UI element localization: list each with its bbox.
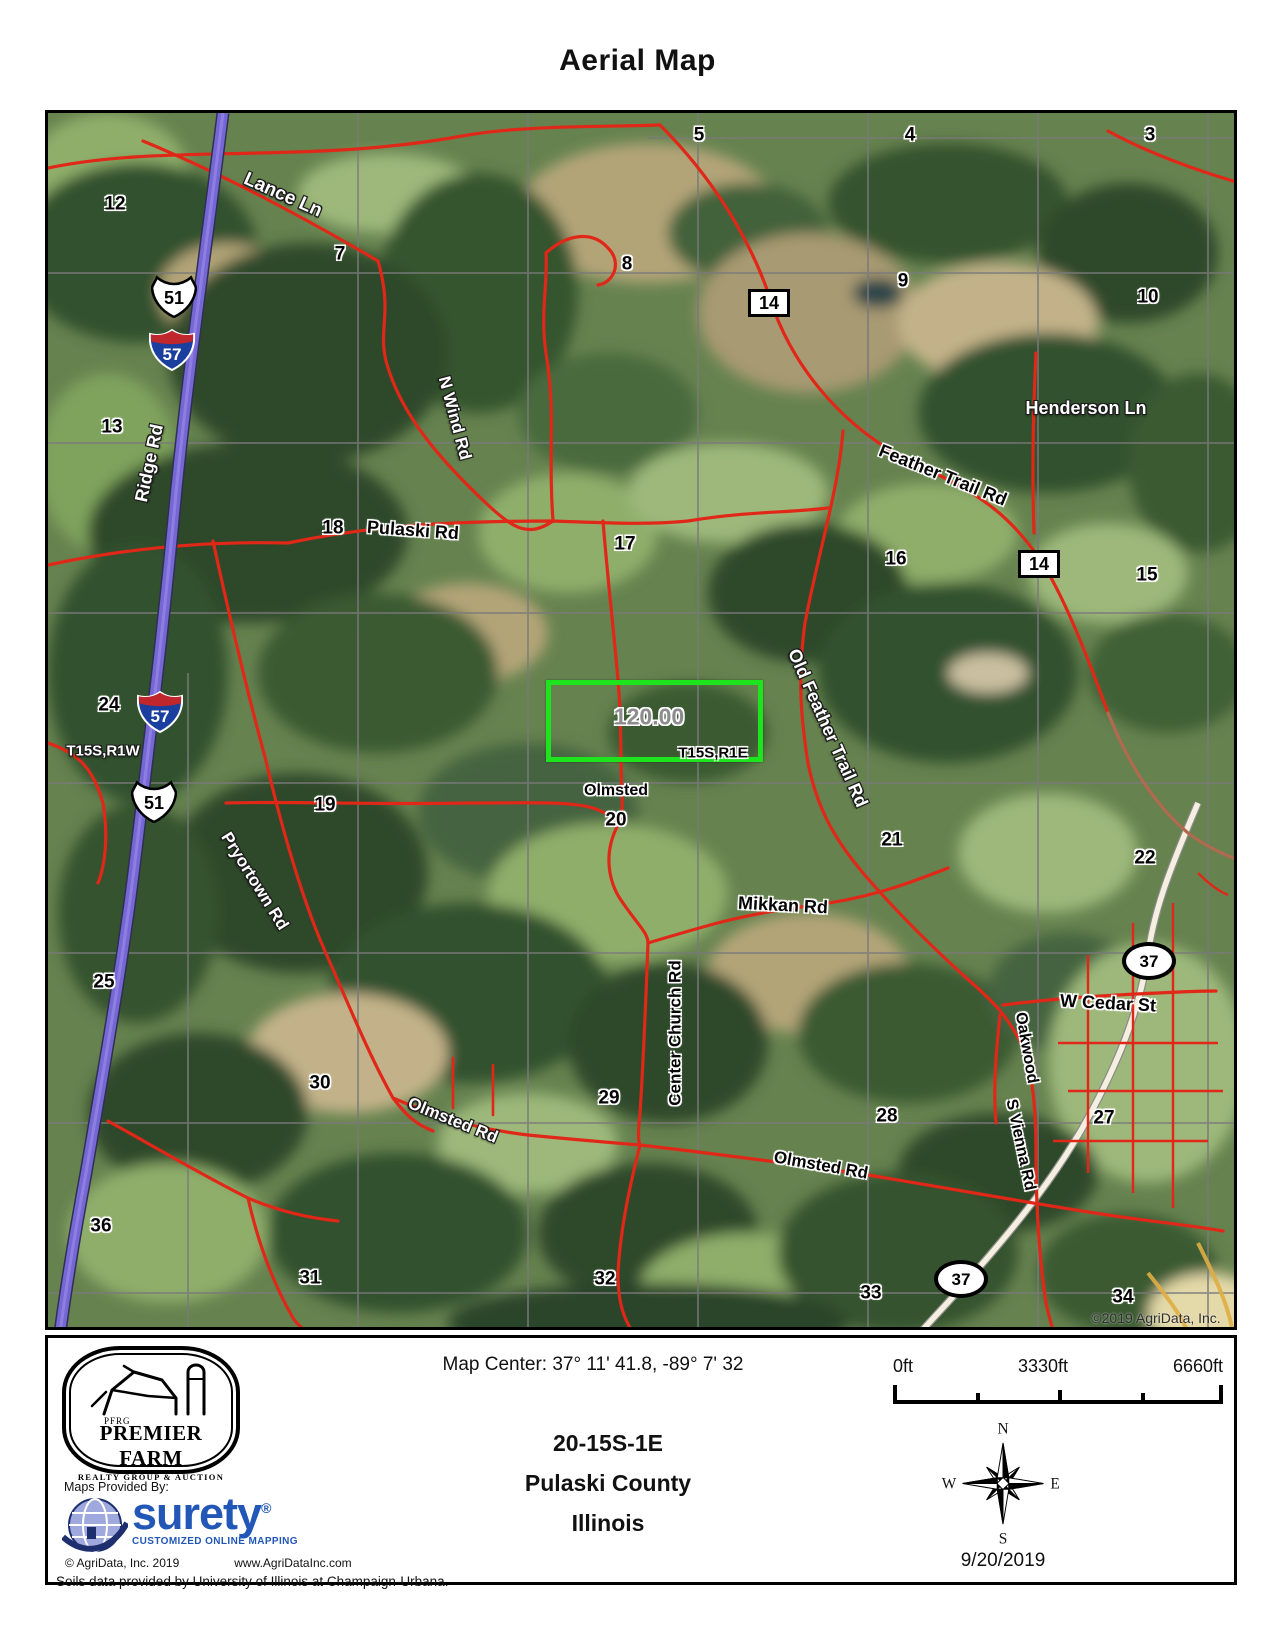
route-box-shield-14: 14 bbox=[748, 289, 790, 317]
state-route-shield-37: 37 bbox=[1122, 942, 1176, 980]
interstate-shield-57: 57 bbox=[137, 691, 183, 733]
us-route-shield-51: 51 bbox=[131, 779, 177, 823]
county-name: Pulaski County bbox=[478, 1470, 738, 1497]
svg-text:57: 57 bbox=[163, 345, 182, 364]
compass-n: N bbox=[997, 1420, 1008, 1437]
scale-bar bbox=[893, 1382, 1223, 1404]
scale-bar-labels: 0ft 3330ft 6660ft bbox=[893, 1356, 1223, 1377]
compass-w: W bbox=[942, 1475, 957, 1492]
map-center-coordinates: Map Center: 37° 11' 41.8, -89° 7' 32 bbox=[378, 1354, 808, 1376]
scale-start: 0ft bbox=[893, 1356, 913, 1377]
township-range-section: 20-15S-1E bbox=[478, 1430, 738, 1457]
agridata-copyright: © AgriData, Inc. 2019 bbox=[65, 1556, 179, 1570]
surety-logo: surety® CUSTOMIZED ONLINE MAPPING bbox=[62, 1494, 298, 1556]
scale-mid: 3330ft bbox=[1018, 1356, 1068, 1377]
us-route-shield-51: 51 bbox=[151, 274, 197, 318]
barn-silo-icon bbox=[76, 1356, 226, 1418]
aerial-map-image: 5431278910131817161524192021222530292827… bbox=[45, 110, 1237, 1330]
page: Aerial Map bbox=[0, 0, 1275, 1650]
registered-mark: ® bbox=[261, 1500, 271, 1516]
svg-text:57: 57 bbox=[151, 707, 170, 726]
premier-farm-logo: PFRG PREMIER FARM REALTY GROUP & AUCTION bbox=[62, 1346, 240, 1474]
soils-data-credit: Soils data provided by University of Ill… bbox=[56, 1574, 448, 1589]
svg-text:51: 51 bbox=[164, 288, 184, 308]
agridata-credit-line: © AgriData, Inc. 2019 www.AgriDataInc.co… bbox=[65, 1556, 365, 1570]
page-title: Aerial Map bbox=[0, 44, 1275, 78]
agridata-url: www.AgriDataInc.com bbox=[234, 1556, 351, 1570]
state-name: Illinois bbox=[478, 1510, 738, 1537]
footer-panel: Map Center: 37° 11' 41.8, -89° 7' 32 20-… bbox=[45, 1335, 1237, 1585]
location-block: 20-15S-1E Pulaski County Illinois bbox=[478, 1430, 738, 1550]
compass-rose-icon: N E S W bbox=[928, 1416, 1078, 1551]
premier-farm-name: PREMIER FARM bbox=[66, 1421, 236, 1471]
route-box-shield-14: 14 bbox=[1018, 550, 1060, 578]
interstate-shield-57: 57 bbox=[149, 329, 195, 371]
svg-text:51: 51 bbox=[144, 793, 164, 813]
globe-icon bbox=[62, 1494, 128, 1556]
compass-e: E bbox=[1050, 1475, 1059, 1492]
compass-s: S bbox=[999, 1530, 1008, 1547]
pfrg-monogram: PFRG bbox=[104, 1416, 131, 1426]
state-route-shield-37: 37 bbox=[934, 1260, 988, 1298]
map-date: 9/20/2019 bbox=[928, 1550, 1078, 1572]
surety-wordmark: surety bbox=[132, 1488, 261, 1539]
surety-tagline: CUSTOMIZED ONLINE MAPPING bbox=[132, 1536, 298, 1547]
scale-end: 6660ft bbox=[1173, 1356, 1223, 1377]
map-shields: 51 571414 57 513737 bbox=[48, 113, 1234, 1327]
